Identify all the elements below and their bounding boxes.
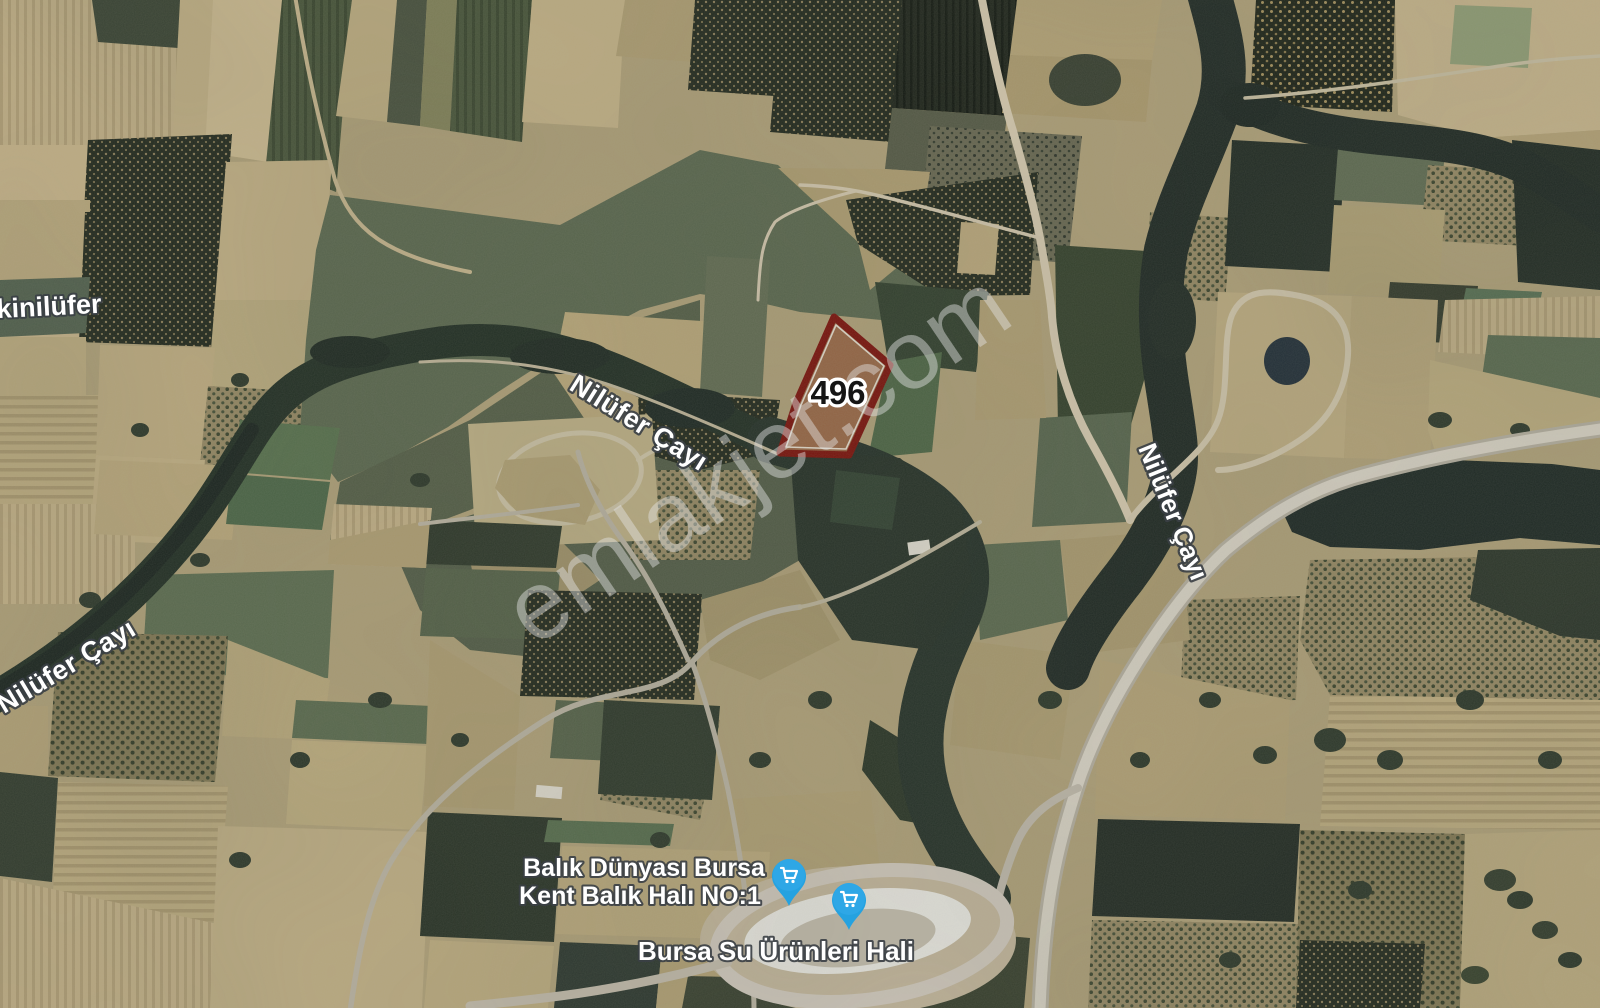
svg-text:Kent Balık Halı NO:1: Kent Balık Halı NO:1 bbox=[519, 882, 761, 910]
svg-text:496: 496 bbox=[810, 374, 865, 411]
svg-text:Balık Dünyası Bursa: Balık Dünyası Bursa bbox=[523, 854, 766, 882]
svg-text:Bursa Su Ürünleri Hali: Bursa Su Ürünleri Hali bbox=[638, 936, 914, 966]
